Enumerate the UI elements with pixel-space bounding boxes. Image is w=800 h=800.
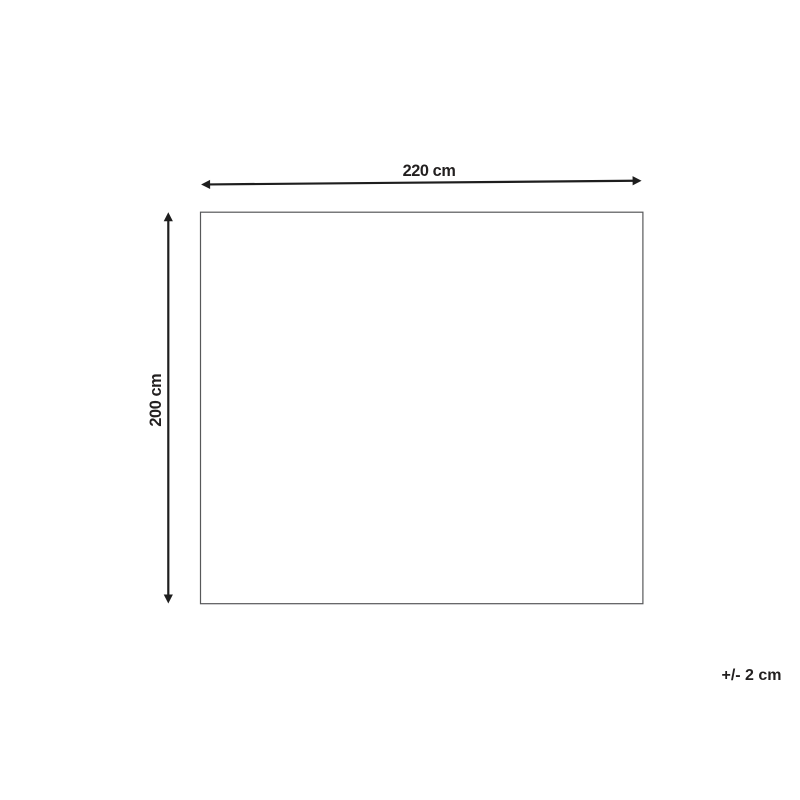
svg-text:200 cm: 200 cm [147,374,165,427]
svg-text:220 cm: 220 cm [403,162,456,180]
svg-text:+/- 2 cm: +/- 2 cm [721,667,781,684]
